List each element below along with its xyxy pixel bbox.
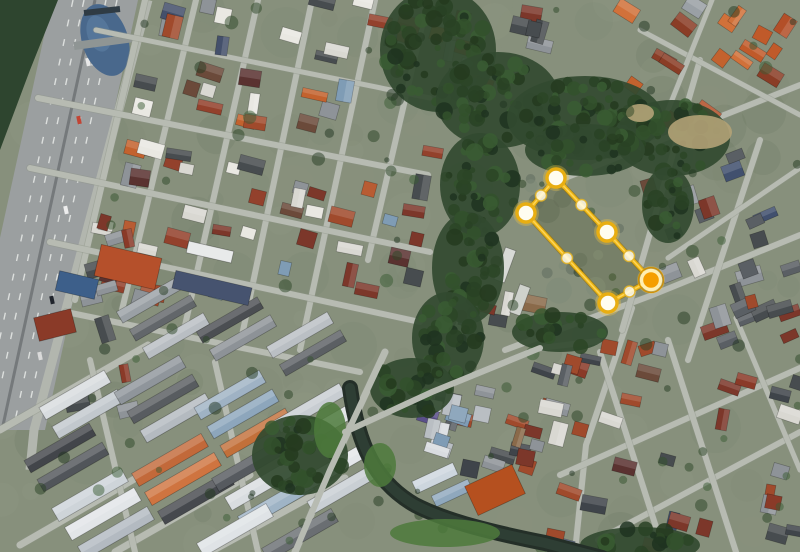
tree — [551, 80, 566, 95]
tree — [251, 2, 262, 13]
tree — [669, 187, 675, 193]
tree — [415, 32, 425, 42]
tree — [209, 402, 222, 415]
tree — [622, 105, 634, 117]
tree — [403, 73, 411, 81]
building — [460, 459, 480, 479]
tree — [549, 95, 560, 106]
tree — [578, 84, 588, 94]
building — [199, 0, 216, 15]
pond-bridge — [84, 9, 120, 13]
tree — [35, 483, 47, 495]
tree — [392, 251, 402, 261]
tree — [689, 169, 697, 177]
tree — [481, 110, 489, 118]
tree — [457, 86, 469, 98]
tree — [295, 418, 311, 434]
tree — [279, 279, 292, 292]
tree — [486, 66, 496, 76]
tree — [501, 382, 511, 392]
tree — [659, 211, 672, 224]
tree — [551, 139, 564, 152]
tree — [594, 129, 605, 140]
tree — [386, 89, 398, 101]
tree — [551, 155, 562, 166]
tree — [639, 21, 650, 32]
tree — [682, 534, 693, 545]
tree — [474, 20, 490, 36]
ground-mottle — [518, 236, 548, 266]
tree — [467, 334, 482, 349]
tree — [695, 499, 707, 511]
tree — [88, 394, 97, 403]
vertex-handle[interactable] — [547, 169, 565, 187]
tree — [243, 111, 256, 124]
midpoint-handle[interactable] — [624, 286, 635, 297]
tree — [386, 35, 397, 46]
tree — [384, 157, 389, 162]
tree — [162, 177, 170, 185]
tree — [327, 513, 336, 522]
tree — [194, 61, 206, 73]
tree — [488, 453, 494, 459]
tree — [538, 150, 545, 157]
tree — [446, 12, 452, 18]
tree — [629, 185, 641, 197]
tree — [579, 164, 593, 178]
tree — [605, 95, 613, 103]
building — [600, 339, 618, 356]
tree — [106, 220, 115, 229]
tree — [99, 343, 110, 354]
tree — [597, 110, 613, 126]
building — [248, 188, 266, 206]
tree — [285, 483, 295, 493]
vertex-handle[interactable] — [517, 204, 535, 222]
tree — [203, 336, 210, 343]
tree — [749, 42, 757, 50]
tree — [398, 4, 413, 19]
building — [409, 231, 424, 247]
tree — [430, 33, 441, 44]
tree — [571, 410, 582, 421]
tree — [516, 314, 533, 331]
building — [652, 341, 669, 357]
tree — [682, 163, 691, 172]
tree — [400, 377, 414, 391]
tree — [664, 385, 671, 392]
tree — [421, 404, 435, 418]
tree — [461, 319, 476, 334]
tree — [325, 129, 334, 138]
tree — [526, 329, 534, 337]
vertex-handle-selected[interactable] — [642, 271, 661, 290]
tree — [504, 91, 512, 99]
tree — [507, 300, 518, 311]
tree — [110, 193, 119, 202]
tree — [569, 470, 575, 476]
tree — [223, 514, 231, 522]
tree — [112, 467, 123, 478]
tree — [640, 338, 653, 351]
tree — [617, 142, 631, 156]
tree — [790, 19, 797, 26]
tree — [720, 435, 727, 442]
tree — [609, 149, 618, 158]
tree — [680, 152, 688, 160]
tree — [703, 482, 712, 491]
tree — [597, 82, 607, 92]
tree — [553, 7, 559, 13]
grass-bank — [390, 519, 500, 547]
tree — [596, 155, 603, 162]
tree — [125, 438, 135, 448]
ground-mottle — [777, 275, 800, 298]
tree — [759, 61, 772, 74]
vertex-handle[interactable] — [598, 223, 616, 241]
ground-mottle — [321, 10, 337, 26]
tree — [225, 16, 239, 30]
tree — [312, 152, 325, 165]
tree — [470, 311, 477, 318]
tree — [417, 371, 424, 378]
tree — [610, 80, 623, 93]
tree — [444, 19, 461, 36]
tree — [450, 193, 457, 200]
tree — [391, 65, 404, 78]
satellite-scene — [0, 0, 800, 552]
tree — [648, 154, 655, 161]
tree — [672, 145, 680, 153]
tree — [597, 328, 607, 338]
tree — [394, 237, 400, 243]
tree — [566, 159, 573, 166]
midpoint-handle[interactable] — [562, 253, 573, 264]
tree — [543, 331, 555, 343]
tree — [302, 441, 316, 455]
tree — [675, 195, 690, 210]
tree — [436, 352, 450, 366]
tree — [425, 10, 442, 27]
tree — [373, 496, 383, 506]
tree — [575, 312, 588, 325]
tree — [166, 323, 177, 334]
midpoint-handle[interactable] — [536, 190, 547, 201]
tree — [466, 282, 481, 297]
tree — [365, 47, 372, 54]
tree — [307, 356, 314, 363]
tree — [619, 476, 627, 484]
tree — [137, 102, 145, 110]
tree — [518, 412, 529, 423]
tree — [732, 339, 745, 352]
tree — [500, 172, 511, 183]
tree — [620, 521, 636, 537]
tree — [454, 64, 470, 80]
tree — [607, 165, 617, 175]
lot-scrub — [542, 267, 553, 278]
ground-mottle — [390, 425, 429, 464]
tree — [437, 59, 445, 67]
lot-scrub — [546, 278, 572, 304]
tree — [465, 221, 473, 229]
tree — [306, 467, 316, 477]
tree — [446, 229, 463, 246]
tree — [584, 299, 596, 311]
tree — [567, 101, 582, 116]
tree — [762, 513, 772, 523]
tree — [680, 102, 688, 110]
tree — [442, 111, 451, 120]
tree — [553, 114, 561, 122]
tree — [464, 237, 473, 246]
tree — [717, 236, 726, 245]
tree — [443, 83, 454, 94]
tree — [450, 365, 463, 378]
building — [403, 267, 424, 287]
tree — [132, 355, 140, 363]
tree — [457, 334, 467, 344]
tree — [579, 136, 587, 144]
tree — [674, 232, 681, 239]
tree — [205, 488, 216, 499]
tree — [483, 133, 498, 148]
tree — [140, 20, 148, 28]
tree — [610, 101, 619, 110]
tree — [502, 132, 513, 143]
tree — [677, 312, 690, 325]
tree — [386, 378, 397, 389]
tree — [484, 232, 499, 247]
tree — [672, 221, 680, 229]
tree — [386, 165, 397, 176]
tree — [274, 446, 281, 453]
tree — [387, 21, 401, 35]
tree — [248, 494, 254, 500]
tree — [479, 284, 497, 302]
tree — [159, 286, 168, 295]
tree — [387, 48, 403, 64]
tree — [470, 36, 478, 44]
tree — [283, 420, 290, 427]
tree — [421, 71, 429, 79]
tree — [283, 426, 290, 433]
tree — [570, 123, 580, 133]
tree — [286, 537, 294, 545]
building — [526, 20, 543, 38]
vertex-handle[interactable] — [599, 294, 617, 312]
tree — [480, 266, 490, 276]
tree — [284, 390, 293, 399]
tree — [783, 472, 791, 480]
tree — [667, 168, 676, 177]
tree — [666, 533, 684, 551]
tree — [496, 216, 503, 223]
tree — [415, 489, 420, 494]
midpoint-handle[interactable] — [576, 200, 587, 211]
tree — [445, 274, 460, 289]
tree — [599, 140, 611, 152]
tree — [580, 98, 588, 106]
tree — [448, 299, 456, 307]
tree — [407, 85, 418, 96]
sand-clearing — [668, 115, 732, 149]
tree — [368, 130, 380, 142]
tree — [436, 370, 443, 377]
tree — [483, 196, 498, 211]
tree — [465, 361, 477, 373]
tree — [573, 339, 588, 354]
tree — [58, 452, 70, 464]
tree — [477, 60, 488, 71]
tree — [497, 78, 509, 90]
tree — [457, 169, 472, 184]
tree — [728, 6, 740, 18]
tree — [659, 263, 666, 270]
tree — [246, 367, 258, 379]
tree — [546, 125, 560, 139]
tree — [414, 61, 420, 67]
tree — [537, 92, 549, 104]
tree — [647, 190, 664, 207]
tree — [544, 307, 560, 323]
tree — [638, 522, 653, 537]
tree — [658, 457, 668, 467]
ground-mottle — [731, 469, 764, 502]
ground-mottle — [338, 503, 375, 540]
tree — [464, 43, 471, 50]
tree — [685, 463, 694, 472]
satellite-map-canvas[interactable] — [0, 0, 800, 552]
tree — [265, 420, 280, 435]
tree — [409, 175, 419, 185]
tree — [232, 129, 244, 141]
tree — [518, 64, 529, 75]
midpoint-handle[interactable] — [624, 251, 635, 262]
tree — [534, 116, 544, 126]
tree — [466, 143, 484, 161]
tree — [441, 172, 451, 182]
tree — [380, 274, 393, 287]
tree — [486, 169, 499, 182]
tree — [673, 177, 683, 187]
tree — [652, 536, 667, 551]
tree — [156, 467, 162, 473]
tree — [686, 245, 699, 258]
tree — [459, 104, 471, 116]
tree — [575, 377, 582, 384]
tree — [519, 109, 533, 123]
tree — [776, 503, 784, 511]
tree — [566, 315, 575, 324]
tree — [420, 334, 431, 345]
lot-scrub — [524, 179, 537, 192]
tree — [93, 484, 105, 496]
tree — [418, 314, 427, 323]
tree — [607, 126, 621, 140]
tree — [471, 193, 478, 200]
building — [515, 448, 535, 467]
tree — [491, 256, 503, 268]
tree — [518, 180, 526, 188]
building — [472, 405, 491, 423]
tree — [695, 160, 705, 170]
tree — [285, 447, 299, 461]
tree — [698, 447, 707, 456]
tree — [435, 45, 441, 51]
tree — [647, 86, 656, 95]
tree — [655, 143, 667, 155]
grass-bank — [364, 443, 396, 487]
tree — [500, 101, 508, 109]
tree — [468, 85, 485, 102]
tree — [478, 254, 486, 262]
tree — [601, 537, 610, 546]
